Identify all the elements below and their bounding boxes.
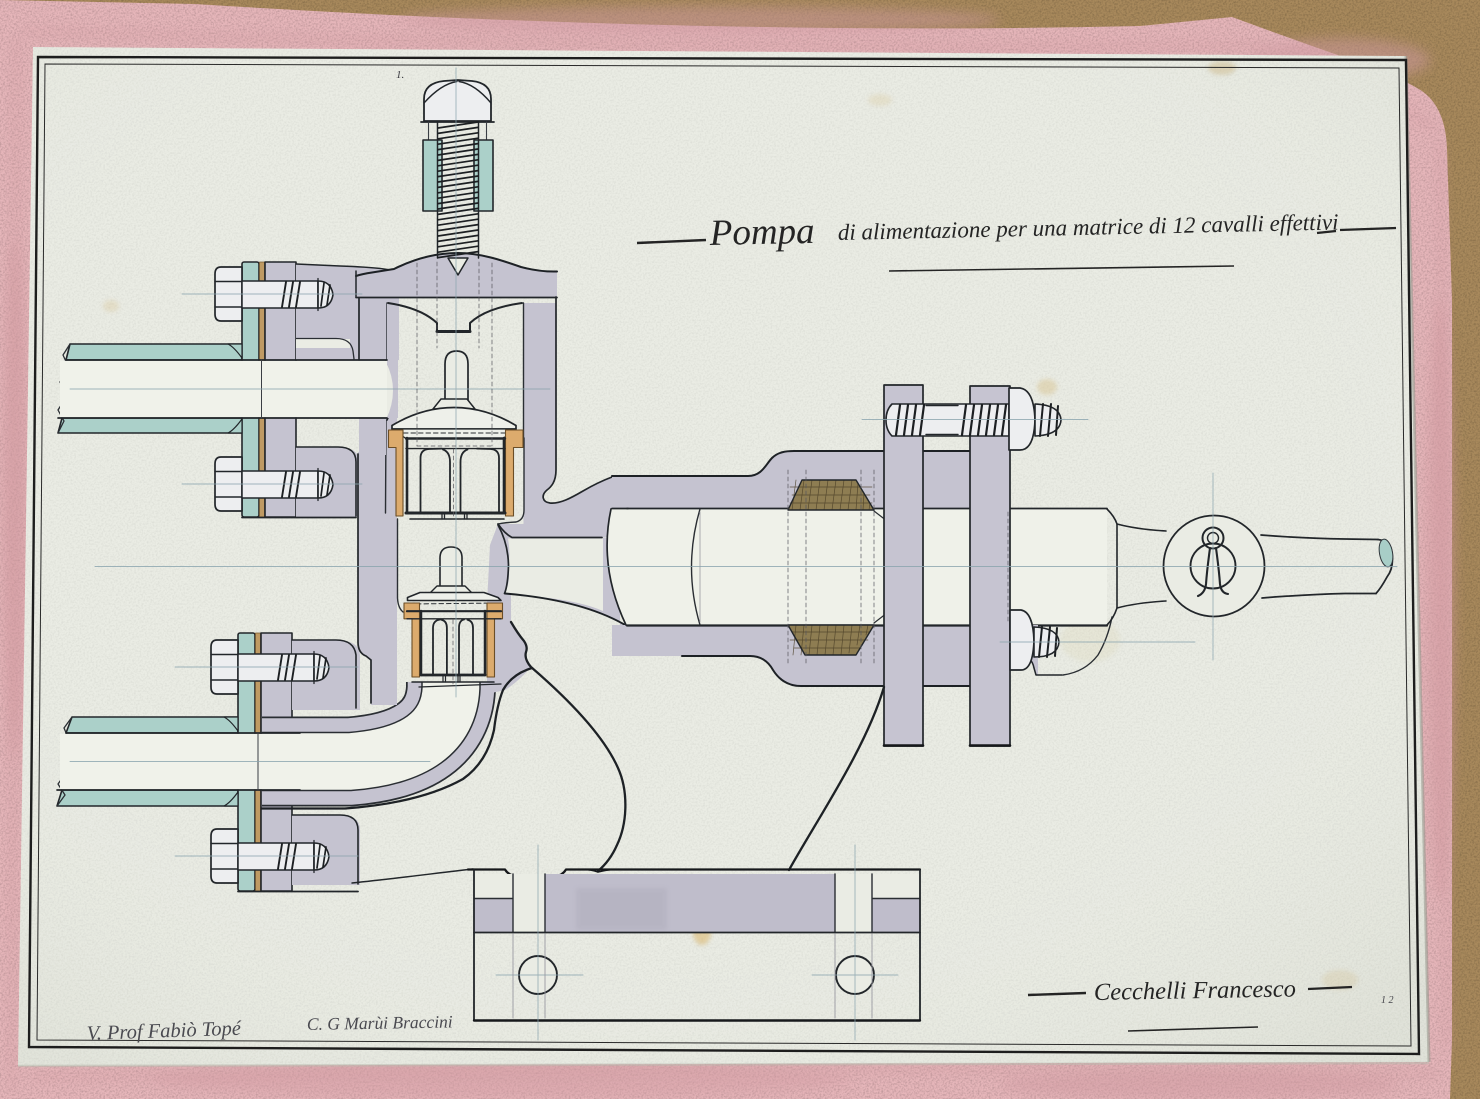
svg-text:1.: 1. [396, 69, 404, 81]
svg-text:1 2: 1 2 [1381, 995, 1394, 1006]
svg-text:Pompa: Pompa [708, 211, 815, 254]
svg-text:Cecchelli Francesco: Cecchelli Francesco [1094, 975, 1296, 1006]
svg-text:C. G Marùi Braccini: C. G Marùi Braccini [307, 1011, 453, 1034]
